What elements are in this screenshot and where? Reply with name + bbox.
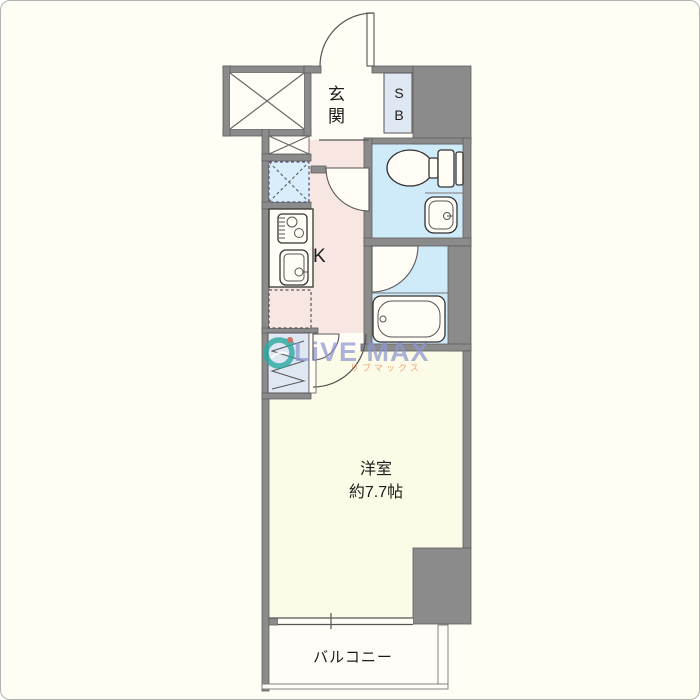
- entrance-label: 玄関: [322, 85, 347, 129]
- pillar: [413, 548, 471, 624]
- washbasin-icon: [425, 197, 457, 233]
- pipe-shaft-x-icon: [269, 136, 309, 154]
- western-room-name: 洋室: [326, 458, 426, 481]
- toilet-icon: [387, 150, 463, 187]
- western-room-size: 約7.7帖: [326, 481, 426, 504]
- watermark-logo-icon: [259, 332, 299, 372]
- western-room-label: 洋室 約7.7帖: [326, 458, 426, 504]
- entrance-door-arc: [320, 13, 374, 66]
- refrigerator-space: [269, 290, 311, 328]
- shoe-box-label: SB: [391, 85, 407, 129]
- balcony-label: バルコニー: [303, 646, 403, 667]
- bathtub-icon: [373, 296, 445, 342]
- stove-icon: [278, 214, 307, 243]
- kitchen-label: K: [313, 246, 326, 268]
- floorplan-canvas: 玄関 SB K 洋室 約7.7帖 バルコニー LiVE MAX リブマックス: [0, 0, 700, 700]
- watermark-brand-kana: リブマックス: [350, 361, 422, 374]
- kitchen-sink-icon: [280, 250, 308, 285]
- laundry-space-icon: [269, 162, 309, 202]
- elevator-x-icon: [230, 73, 304, 129]
